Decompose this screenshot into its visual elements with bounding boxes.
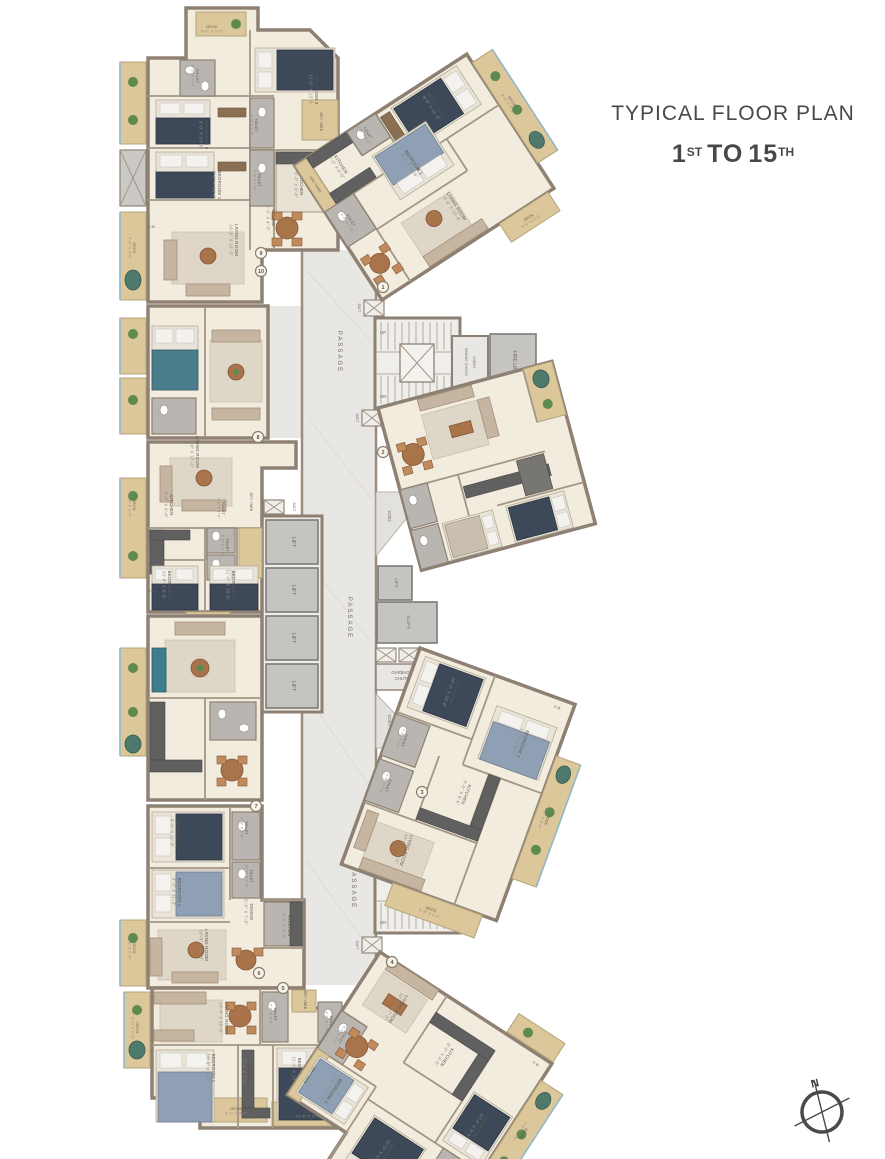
room-label: KITCHEN8'-0" X 9'-0" xyxy=(164,492,174,518)
title-block: TYPICAL FLOOR PLAN 1STTO15TH xyxy=(608,102,858,169)
room-label: LIVING ROOM10'-6" X 15'-0" xyxy=(219,1002,229,1034)
unit-number: 6 xyxy=(257,971,260,977)
unit-number: 7 xyxy=(254,804,257,810)
unit-number: 8 xyxy=(256,435,259,441)
compass: N xyxy=(784,1071,858,1150)
void-label: VOID xyxy=(387,510,392,522)
lift-label: LIFT xyxy=(394,578,399,588)
room-label: KITCHEN8'-6" X 8'-0" xyxy=(282,913,292,939)
passage-label: PASSAGE xyxy=(336,331,342,373)
page-title: TYPICAL FLOOR PLAN xyxy=(608,102,858,126)
stairs-down-label: DN xyxy=(380,394,387,399)
duct-label: DUCT xyxy=(355,414,359,423)
unit-number: 2 xyxy=(381,450,384,456)
room-label: BEDROOM 29'-0" X 11'-3" xyxy=(170,819,180,848)
bed xyxy=(156,1050,214,1122)
unit-number: 10 xyxy=(258,269,264,275)
smoke-lobby-label: SMOKE CHECK xyxy=(464,348,468,377)
room-label: BEDROOM 19'-3" X 11'-3" xyxy=(172,878,182,907)
unit-number: 1 xyxy=(381,285,384,291)
unit-6 xyxy=(120,616,262,800)
service-lift-label: S.LIFT xyxy=(406,615,411,629)
room-label: BEDROOM 29'-0" X 10'-0" xyxy=(199,121,209,150)
passage-label: PASSAGE xyxy=(346,597,352,639)
room-label: DRY YARD xyxy=(303,991,307,1010)
floor-plan-canvas: PASSAGE PASSAGE PASSAGE LIFT LIFT LIFT L… xyxy=(0,0,885,1159)
room-label: BEDROOM 211'-0" X 10'-6" xyxy=(226,569,236,600)
unit-number: 9 xyxy=(259,251,262,257)
bed xyxy=(152,812,224,862)
unit-7: BEDROOM 29'-0" X 11'-3"BEDROOM 19'-3" X … xyxy=(120,806,304,988)
lift-label: LIFT xyxy=(290,537,296,547)
floor-plan-page: TYPICAL FLOOR PLAN 1STTO15TH PASSAGE PAS… xyxy=(0,0,885,1159)
compass-north-label: N xyxy=(810,1077,821,1091)
room-label: BEDROOM 19'-0" X 10'-0" xyxy=(212,171,222,200)
room-label: DRY YARD xyxy=(249,493,253,512)
smoke-lobby-label: LOBBY xyxy=(472,356,476,369)
stairs-up-label: UP xyxy=(380,330,386,335)
room-label: C.B. xyxy=(148,225,156,229)
bed xyxy=(152,566,198,610)
room-label: BEDROOM 110'-0" X 9'-6" xyxy=(162,571,172,600)
lift-label: LIFT xyxy=(290,633,296,643)
lift-label: LIFT xyxy=(290,585,296,595)
bed xyxy=(156,152,214,198)
duct-label: DUCT xyxy=(292,503,296,512)
bed xyxy=(152,870,224,918)
bed xyxy=(152,326,198,390)
room-label: LIVING ROOM10'-6" X 15'-3" xyxy=(229,224,239,256)
unit-10 xyxy=(120,306,268,438)
room-label: C.B. xyxy=(148,589,156,593)
unit-number: 3 xyxy=(420,790,423,796)
lift-bank: LIFT LIFT LIFT LIFT DUCT xyxy=(262,500,322,712)
unit-number: 5 xyxy=(281,986,284,992)
room-label: DRY YARD xyxy=(319,113,323,132)
floor-range: 1STTO15TH xyxy=(608,140,858,169)
passage-label: PASSAGE xyxy=(350,867,356,909)
stairs-down-label: DN xyxy=(380,920,387,925)
room-label: KITCHEN7'-6" X 7'-6" xyxy=(242,1059,252,1085)
duct-label: DUCT xyxy=(357,304,361,313)
room-label: LIVING ROOM10'-0" X 15'-3" xyxy=(199,929,209,961)
room-label: BEDROOM 110'-6" X 9'-6" xyxy=(206,1054,216,1083)
lift-label: LIFT xyxy=(290,681,296,691)
duct-label: DUCT xyxy=(355,941,359,950)
room-label: BEDROOM 311'-6" X 12'-0" xyxy=(309,74,319,105)
room-label: LIVING ROOM10'-0" X 17'-3" xyxy=(190,436,200,468)
bed xyxy=(255,48,335,92)
